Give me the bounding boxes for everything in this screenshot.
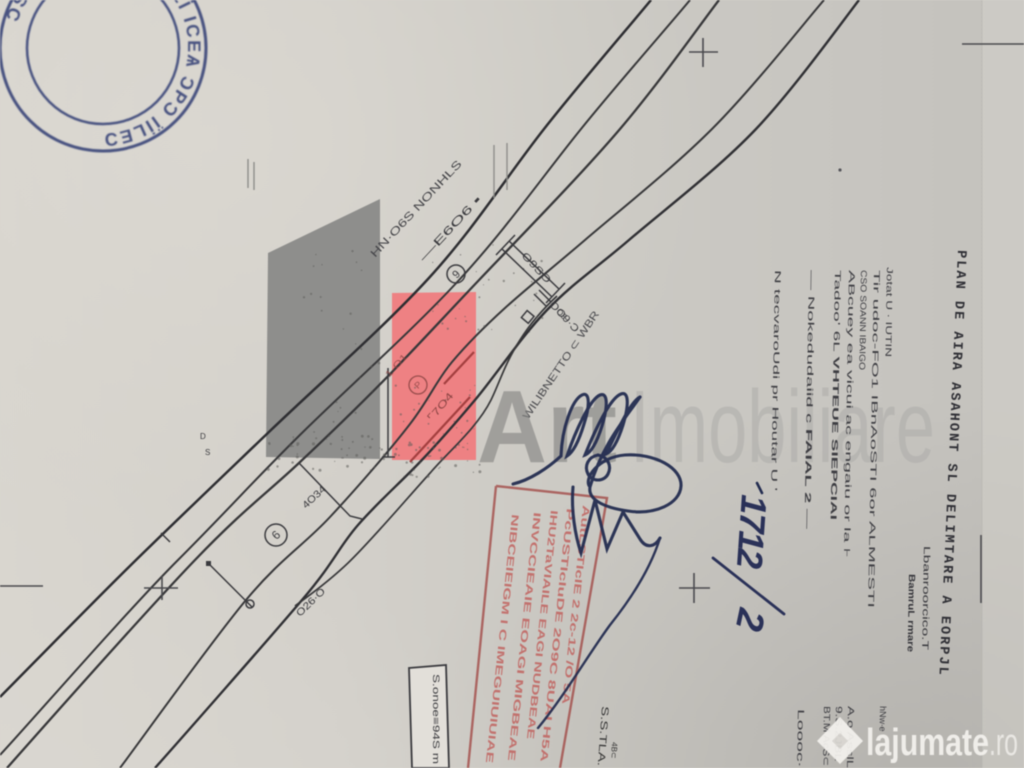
svg-text:Imobiliare: Imobiliare — [630, 369, 935, 484]
svg-text:1712: 1712 — [729, 493, 775, 570]
svg-text:lajumate: lajumate — [866, 722, 989, 764]
svg-text:S.onoe≡94S m: S.onoe≡94S m — [431, 674, 441, 764]
svg-text:Jotat U ∙ IUTIN: Jotat U ∙ IUTIN — [883, 267, 895, 357]
svg-text:BamruL rmare: BamruL rmare — [906, 574, 917, 652]
svg-text:4B⊂: 4B⊂ — [609, 742, 619, 759]
svg-text:.ro: .ro — [989, 722, 1018, 764]
svg-text:D: D — [200, 432, 206, 441]
svg-text:Lbanroorcico.T: Lbanroorcico.T — [920, 546, 932, 651]
svg-text:S: S — [205, 448, 210, 457]
svg-text:Loooc∙: Loooc∙ — [795, 709, 806, 767]
svg-text:CSO SOANN IBAIGO: CSO SOANN IBAIGO — [857, 270, 869, 371]
